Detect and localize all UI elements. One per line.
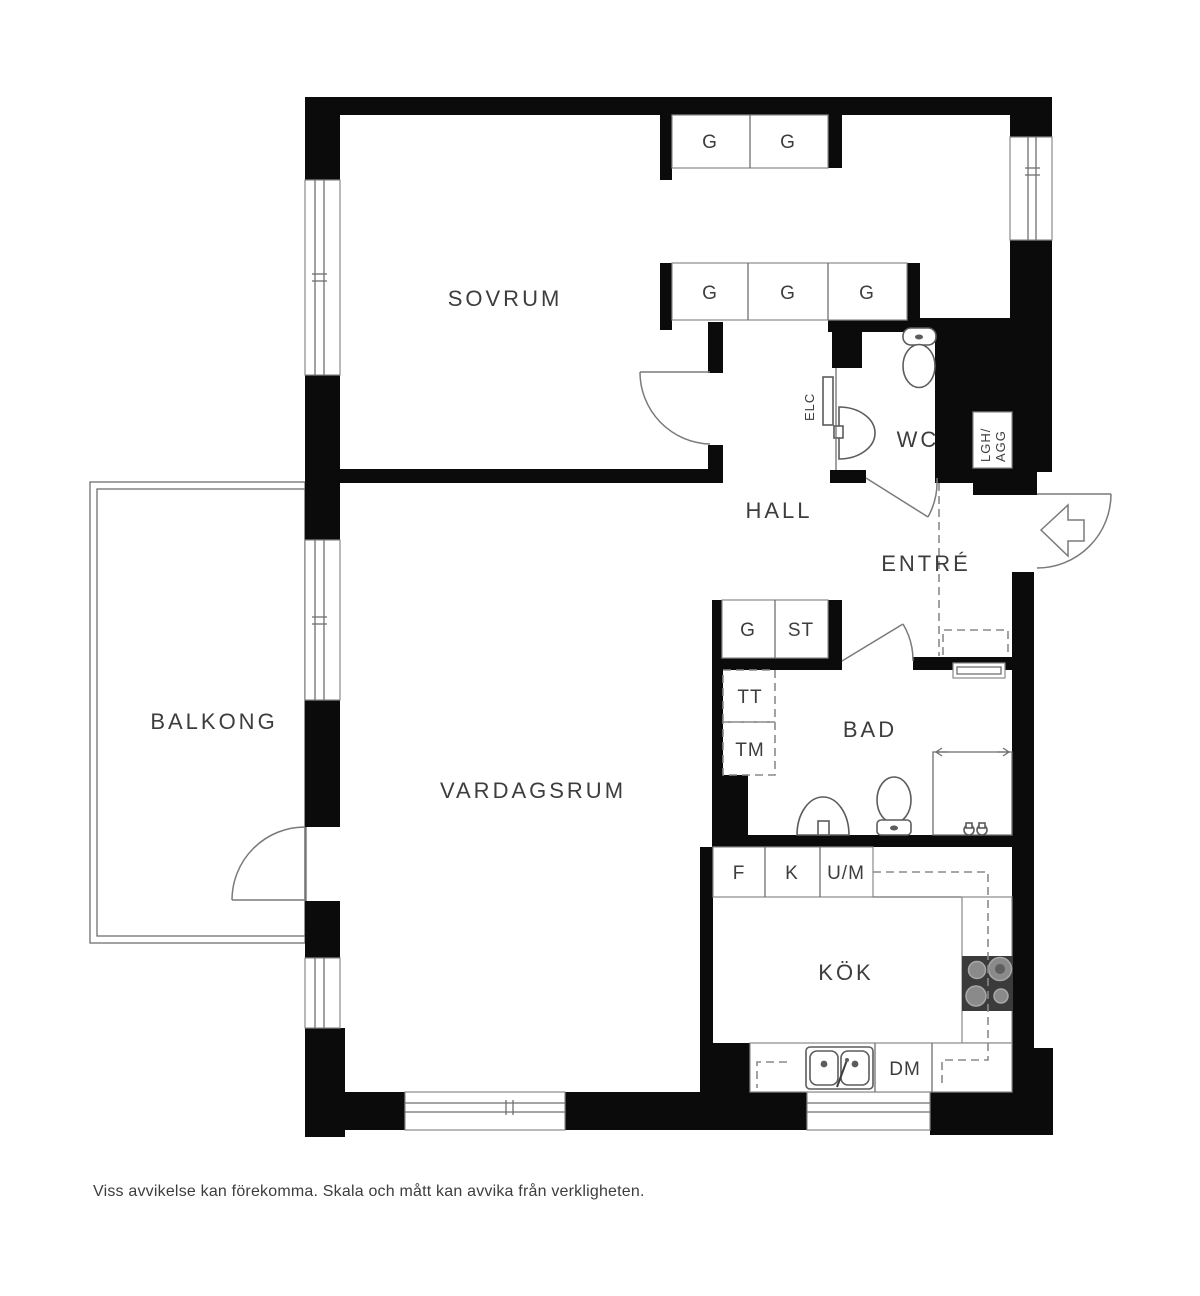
room-labels: SOVRUM VARDAGSRUM BALKONG HALL ENTRÉ WC …: [150, 286, 1008, 985]
label-entre: ENTRÉ: [881, 551, 971, 576]
wall-bottom-2: [565, 1092, 807, 1130]
wall-right-1: [1010, 115, 1052, 137]
floorplan-page: G G G G G G ST F K U/M TT: [0, 0, 1200, 1296]
elc-cabinet-icon: [823, 377, 833, 425]
wall-wc-block: [935, 318, 1012, 412]
wall-kitchen-counter-stub: [713, 1043, 750, 1092]
label-lgh: LGH/: [978, 428, 993, 462]
wall-right-2: [1010, 240, 1052, 472]
entrance-arrow-icon: [1041, 505, 1084, 556]
closet-label: G: [702, 283, 718, 304]
wall-bad-top-left: [712, 657, 842, 670]
label-vardagsrum: VARDAGSRUM: [440, 778, 626, 803]
wall-kitchen-left: [700, 847, 713, 1092]
label-kok: KÖK: [818, 960, 873, 985]
wall-left-3: [305, 700, 340, 827]
label-sovrum: SOVRUM: [448, 286, 563, 311]
shower-icon: [933, 748, 1012, 835]
oven-micro-label: U/M: [827, 863, 865, 884]
entry-details: [939, 483, 1008, 678]
wall-left-5: [305, 1028, 345, 1137]
closet-label: G: [740, 620, 756, 641]
window-vardagsrum-left-lower: [305, 958, 340, 1028]
window-bottom-kok: [807, 1092, 930, 1130]
closet-label: G: [780, 283, 796, 304]
entrance-door: [1037, 494, 1111, 568]
wall-left-4: [305, 901, 340, 958]
dishwasher-label: DM: [889, 1059, 921, 1080]
label-bad: BAD: [843, 717, 897, 742]
wc-toilet-icon: [903, 328, 936, 388]
wall-closet1-left-stub: [660, 115, 672, 180]
wc-door: [866, 478, 937, 517]
washer-label: TM: [735, 740, 764, 761]
wall-bad-left-block: [712, 775, 748, 843]
wall-top: [305, 97, 1052, 115]
freezer-label: F: [733, 863, 746, 884]
closet-row-top: G G: [672, 115, 828, 168]
balcony-door: [232, 827, 306, 901]
wall-bad-bottom: [712, 835, 1012, 847]
label-elc: ELC: [802, 393, 817, 421]
closet-label: G: [859, 283, 875, 304]
window-right: [1010, 137, 1052, 240]
label-agg: AGG: [993, 430, 1008, 462]
wall-right-5: [1012, 1048, 1053, 1135]
floorplan-drawing: G G G G G G ST F K U/M TT: [0, 0, 1200, 1296]
window-bottom-vardagsrum: [405, 1092, 565, 1130]
wall-niche-bottom: [973, 468, 1012, 495]
laundry-tt-tm: TT TM: [723, 670, 775, 775]
wall-closet2-left-stub: [660, 263, 672, 330]
disclaimer-text: Viss avvikelse kan förekomma. Skala och …: [93, 1182, 645, 1200]
bad-door: [842, 624, 913, 661]
closet-row-middle: G G G: [672, 263, 907, 320]
wall-right-3: [1012, 472, 1037, 495]
label-balkong: BALKONG: [150, 709, 277, 734]
wall-left-1: [305, 115, 340, 180]
bad-sink-icon: [797, 797, 849, 835]
wall-gst-right-stub: [828, 600, 842, 658]
walls: [305, 97, 1053, 1137]
bathroom-fixtures: [797, 748, 1012, 835]
window-sovrum-left: [305, 180, 340, 375]
bad-toilet-icon: [877, 777, 911, 835]
wall-sovrum-door-stub-bottom: [708, 445, 723, 483]
wall-wc-bottom-right: [936, 470, 977, 483]
kitchen-counter-bottom: [750, 1043, 1012, 1092]
closet-g-st: G ST: [722, 600, 828, 658]
wall-gst-left-stub: [712, 600, 722, 658]
wc-sink-icon: [834, 407, 875, 459]
label-wc: WC: [897, 427, 940, 452]
dryer-label: TT: [737, 687, 762, 708]
wall-closet1-right-stub: [828, 115, 842, 168]
closet-st-label: ST: [788, 620, 814, 641]
wall-left-2: [305, 375, 340, 540]
wall-sovrum-vardagsrum: [340, 469, 712, 483]
cabinet-f-k-um: F K U/M: [713, 847, 873, 897]
wall-wc-left-stub: [832, 332, 862, 368]
window-vardagsrum-left-upper: [305, 540, 340, 700]
label-hall: HALL: [745, 498, 812, 523]
entry-dashed-box: [943, 630, 1008, 655]
wall-wc-bottom-left: [830, 470, 866, 483]
wall-closet2-right-stub: [907, 263, 920, 330]
wall-sovrum-door-stub-top: [708, 322, 723, 373]
closet-label: G: [780, 132, 796, 153]
sovrum-door: [640, 372, 710, 444]
wall-bottom-1: [340, 1092, 405, 1130]
fridge-label: K: [785, 863, 799, 884]
kitchen: DM: [750, 872, 1013, 1092]
closet-label: G: [702, 132, 718, 153]
kitchen-sink-icon: [806, 1047, 873, 1089]
wall-bad-left: [712, 670, 723, 775]
hatch-icon: [953, 663, 1005, 678]
wall-right-4: [1012, 572, 1034, 1048]
